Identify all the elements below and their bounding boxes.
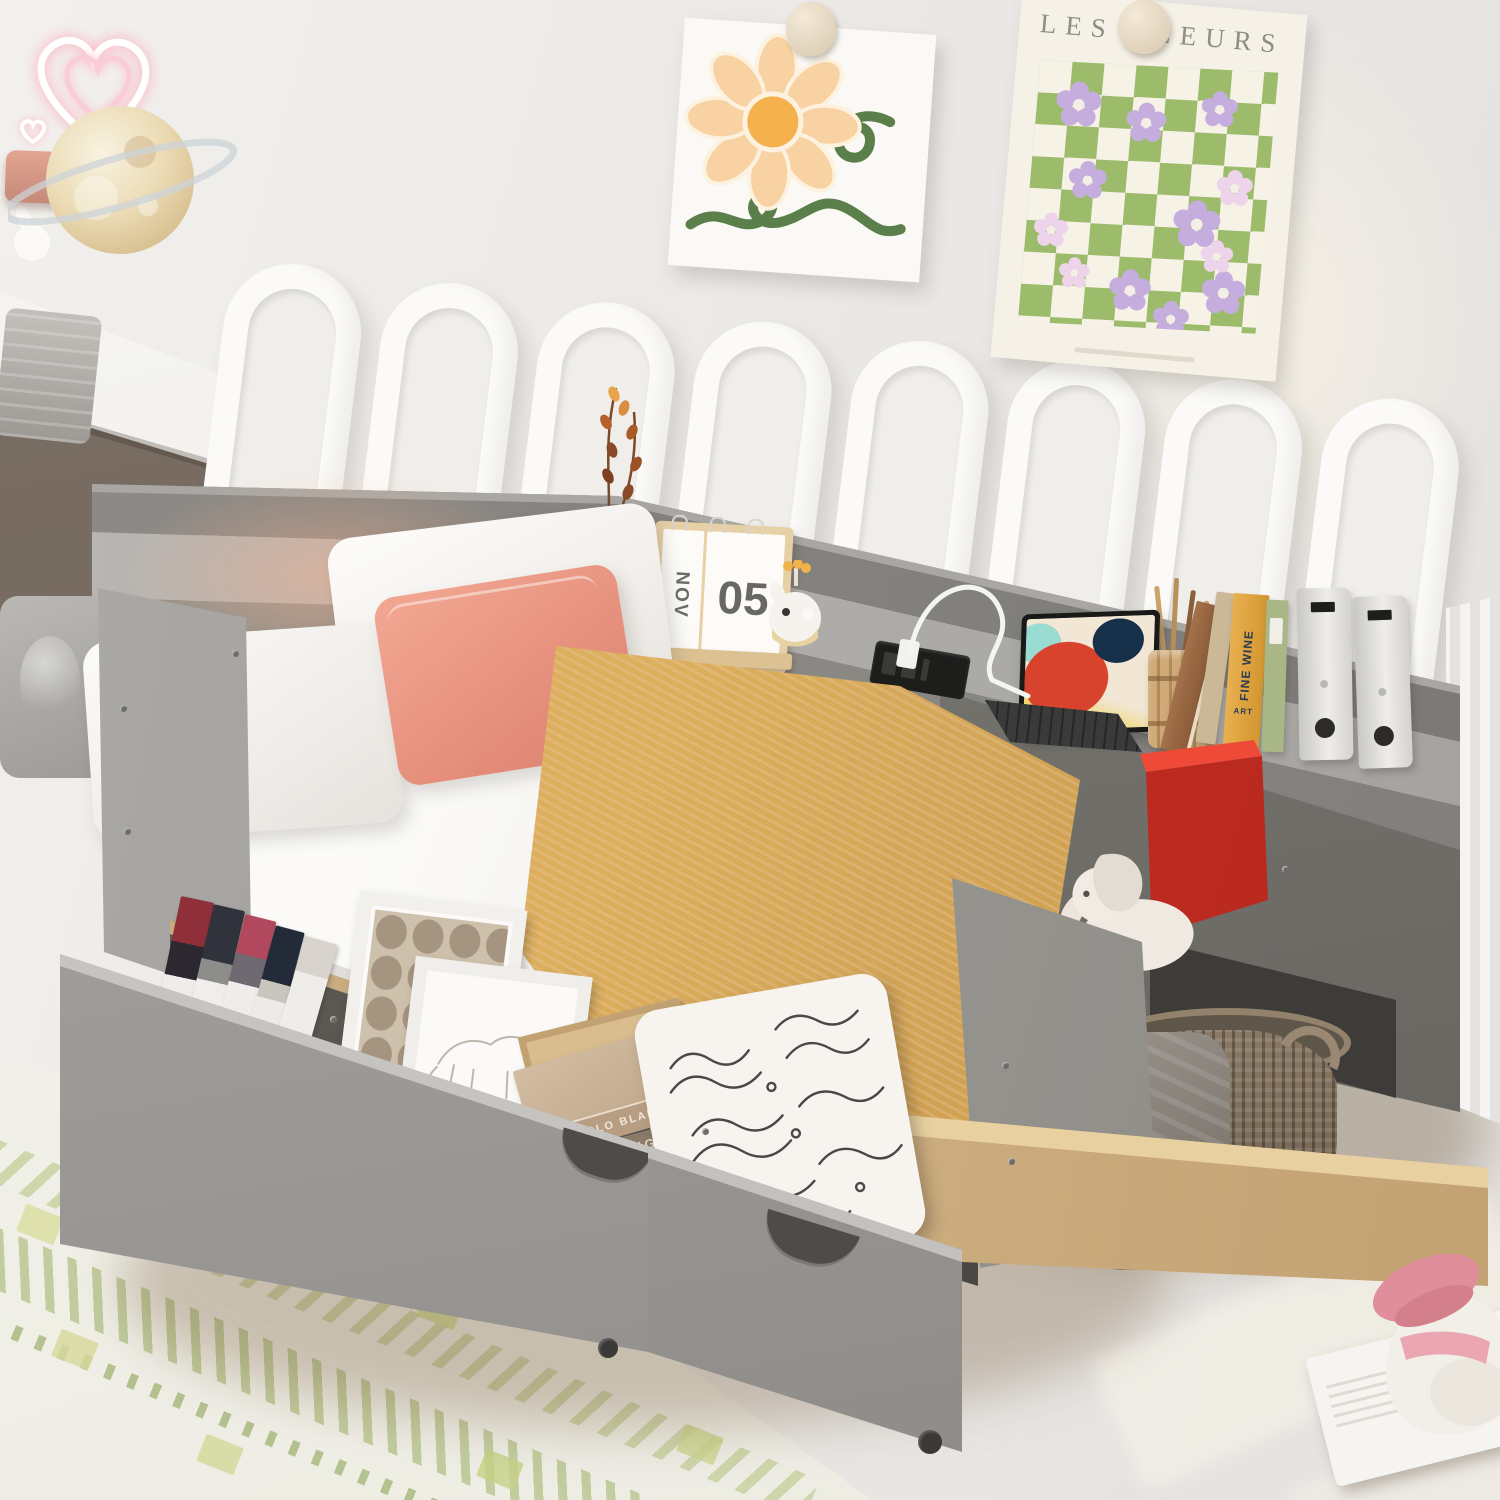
poster-flowers	[1022, 60, 1273, 334]
calendar-day: 05	[716, 570, 770, 627]
book-spine-text: FINE WINE	[1237, 630, 1256, 702]
binder	[1297, 588, 1354, 761]
poster-caption-line	[1074, 347, 1194, 362]
screw	[702, 1128, 709, 1135]
calendar-ring	[671, 514, 688, 531]
daisy-center	[743, 92, 803, 152]
drawer-caster	[918, 1430, 942, 1454]
poster-pin	[786, 2, 836, 56]
branch-leaves	[598, 385, 645, 502]
screw	[1282, 866, 1289, 873]
bunny-figurine	[766, 560, 824, 652]
poster-pin	[1118, 0, 1170, 54]
bedroom-product-photo: LES FLEURS	[0, 0, 1500, 1500]
saturn-decor	[8, 88, 244, 278]
screw	[232, 650, 239, 657]
screw	[124, 828, 131, 835]
rug-square	[196, 1434, 244, 1476]
binder	[1353, 595, 1413, 769]
book-spine-label: ART	[1233, 706, 1253, 716]
poster-daisy	[668, 18, 937, 283]
poster-les-fleurs: LES FLEURS	[991, 0, 1308, 382]
animal-figurine	[1348, 1240, 1500, 1445]
drawer-caster	[598, 1338, 618, 1358]
screw	[120, 705, 127, 712]
screw	[1008, 1158, 1015, 1165]
calendar-month: NOV	[669, 571, 693, 619]
screw	[1002, 1062, 1009, 1069]
calendar-ring	[747, 518, 764, 535]
towel	[0, 307, 102, 444]
calendar-ring	[709, 516, 726, 533]
daisy-artwork	[668, 18, 937, 283]
screw	[330, 1016, 337, 1023]
planet-sphere	[46, 106, 194, 254]
